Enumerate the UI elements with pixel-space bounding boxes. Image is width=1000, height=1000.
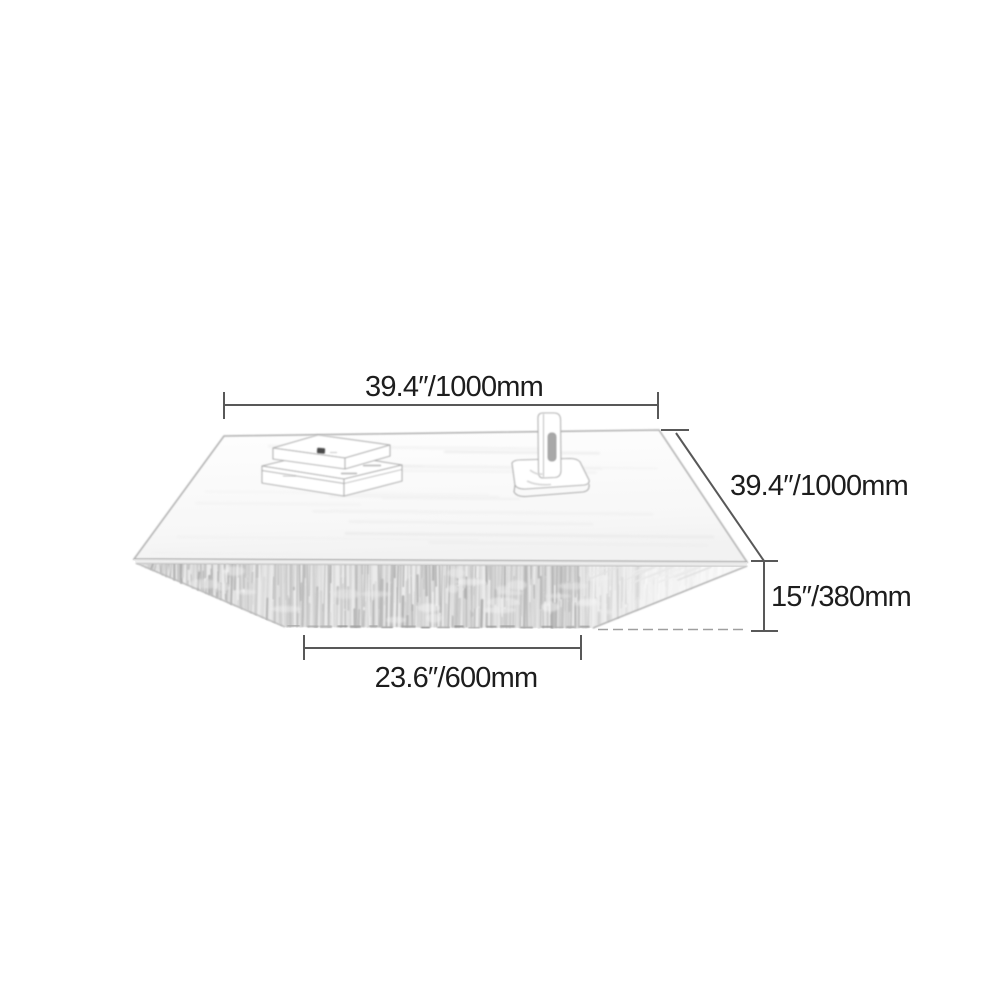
svg-text:39.4″/1000mm: 39.4″/1000mm xyxy=(365,371,543,403)
svg-text:23.6″/600mm: 23.6″/600mm xyxy=(375,662,538,694)
svg-text:15″/380mm: 15″/380mm xyxy=(771,581,911,613)
svg-text:39.4″/1000mm: 39.4″/1000mm xyxy=(730,470,908,502)
